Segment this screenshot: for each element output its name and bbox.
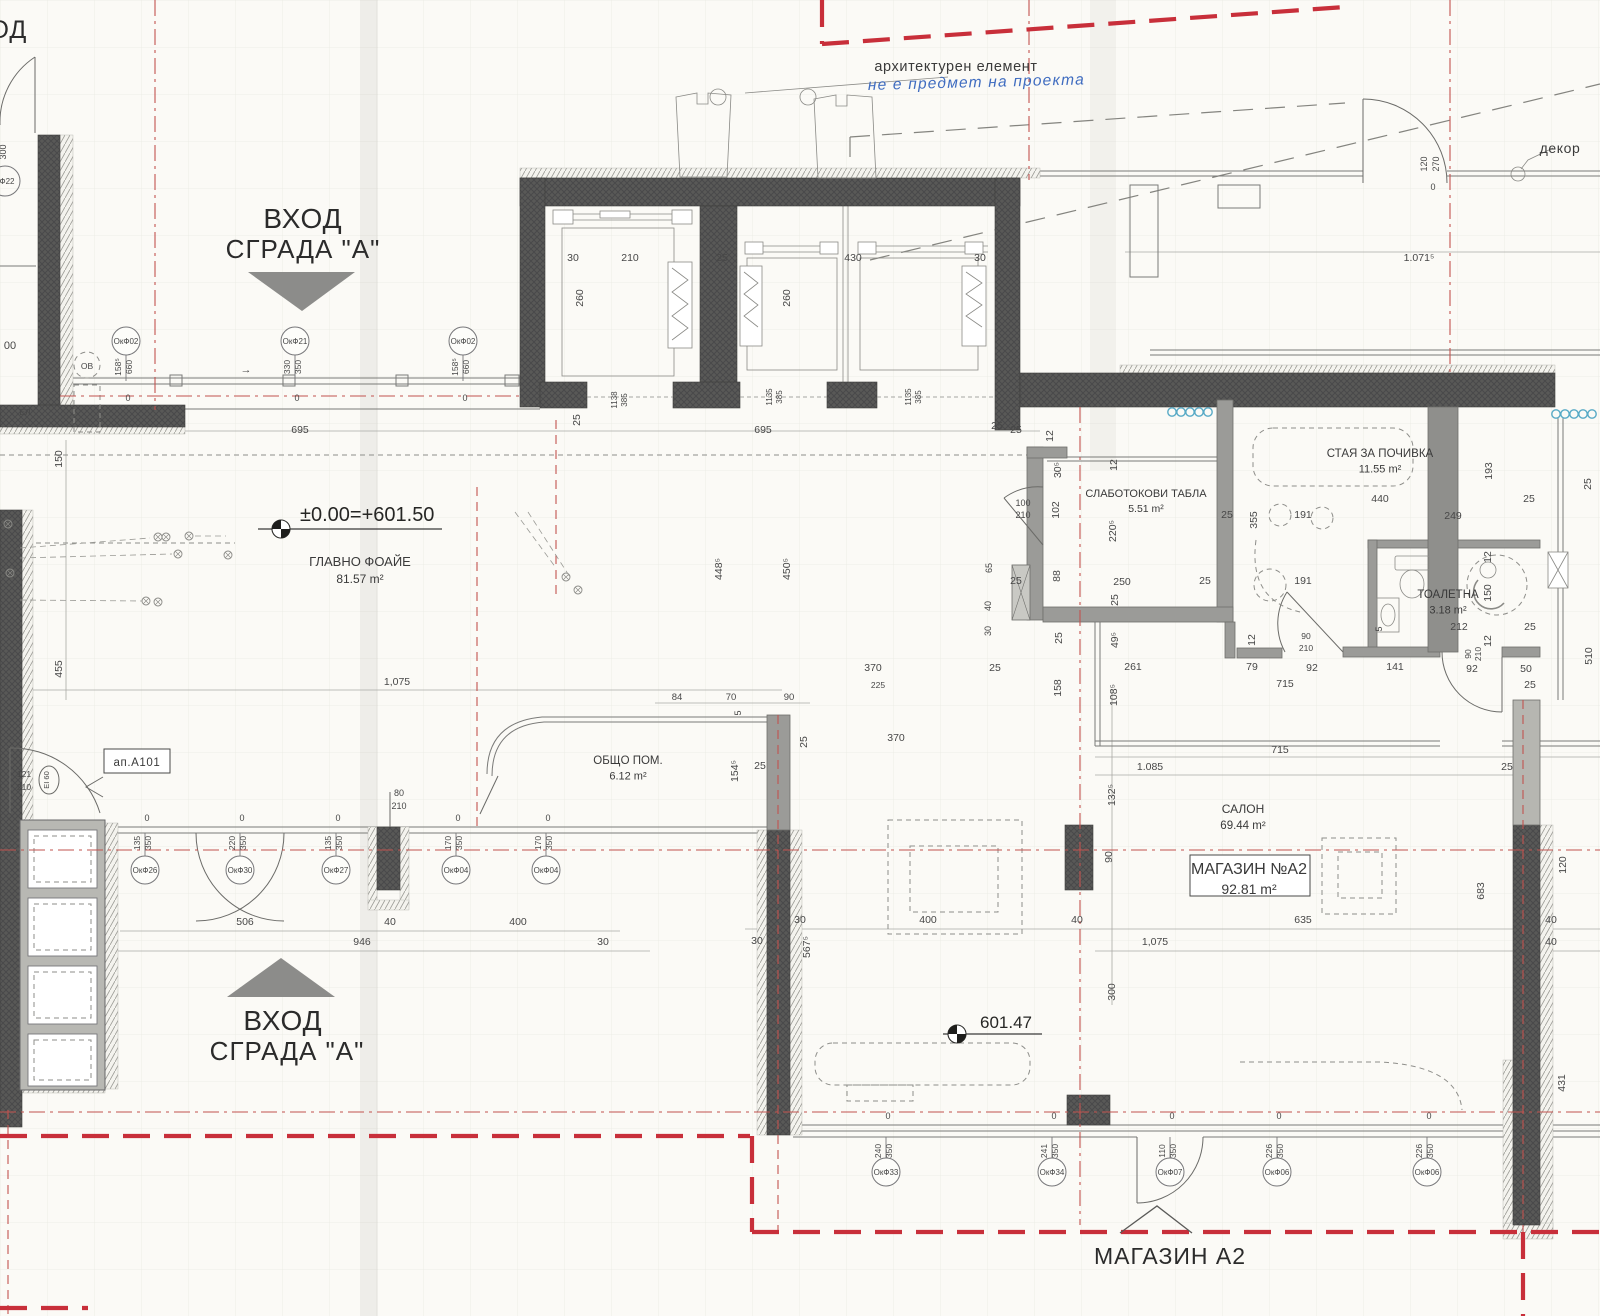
window-dim: 350: [544, 836, 554, 850]
window-tag-label: ОкФ06: [1415, 1168, 1440, 1177]
dimension-text: 506: [236, 916, 254, 928]
dimension-text: 25: [1524, 621, 1536, 633]
shop-bottom-label: МАГАЗИН А2: [1094, 1243, 1246, 1269]
entrance-top-line1: ВХОД: [263, 203, 342, 234]
dimension-text: 300: [1106, 983, 1118, 1001]
window-dim: 350: [1168, 1144, 1178, 1158]
window-tag-label: ОкФ27: [324, 866, 349, 875]
dimension-text: 210: [1473, 647, 1483, 661]
dimension-text: 448⁵: [713, 558, 725, 580]
dimension-text: 25: [1501, 761, 1513, 773]
window-dim: 158⁵: [113, 358, 123, 376]
dimension-text: 120: [1419, 156, 1429, 171]
window-tag-label: ОкФ30: [228, 866, 253, 875]
dimension-text: 92: [1466, 663, 1478, 675]
dimension-text: 261: [1124, 661, 1142, 673]
dimension-text: 191: [1294, 509, 1312, 521]
dimension-text: 260: [781, 289, 793, 307]
dimension-text: 80: [394, 788, 404, 798]
window-dim: 350: [454, 836, 464, 850]
dimension-text: 695: [291, 424, 309, 436]
dimension-text: 00: [4, 340, 16, 352]
dimension-text: 120: [1557, 856, 1569, 874]
elevation-text: ±0.00=+601.50: [300, 504, 434, 526]
dimension-text: 30: [794, 914, 806, 926]
entrance-top-line2: СГРАДА "А": [226, 234, 381, 264]
dimension-text: 25: [1199, 575, 1211, 587]
window-tag-label: ОкФ21: [283, 337, 308, 346]
window-dim: 350: [884, 1144, 894, 1158]
dimension-text: 65: [984, 563, 994, 573]
window-zero-mark: 0: [545, 813, 550, 823]
dimension-text: 12: [1482, 635, 1494, 647]
dimension-text: 49⁵: [1109, 632, 1121, 648]
window-dim: 330: [282, 360, 292, 374]
dimension-text: 225: [871, 680, 885, 690]
dimension-text: 355: [1248, 511, 1260, 529]
dimension-text: 12: [1246, 634, 1258, 646]
dimension-text: 150: [1482, 584, 1494, 602]
dimension-text: 30: [983, 626, 993, 636]
dimension-text: 108⁵: [1108, 684, 1120, 706]
window-tag-label: ОкФ04: [444, 866, 469, 875]
dimension-text: 455: [53, 660, 65, 678]
dimension-text: 385: [775, 390, 784, 404]
window-dim: 158⁵: [450, 358, 460, 376]
window-zero-mark: 0: [335, 813, 340, 823]
window-zero-mark: 0: [455, 813, 460, 823]
window-zero-mark: 0: [144, 813, 149, 823]
dimension-text: 370: [864, 662, 882, 674]
dimension-text: 635: [1294, 914, 1312, 926]
dimension-text: 40: [384, 916, 396, 928]
dimension-text: 440: [1371, 493, 1389, 505]
dimension-text: 25: [1523, 493, 1535, 505]
window-tag-label: ОкФ34: [1040, 1168, 1065, 1177]
dimension-text: 25: [798, 736, 810, 748]
dimension-text: 510: [1583, 647, 1595, 665]
dimension-text: 270: [1431, 156, 1441, 171]
dimension-text: 210: [391, 801, 406, 811]
dimension-text: 1,075: [1142, 936, 1168, 948]
window-tag-label: ОкФ02: [451, 337, 476, 346]
dimension-text: 132⁵: [1106, 784, 1118, 806]
dimension-text: 25: [1582, 478, 1594, 490]
dimension-text: 50: [1520, 663, 1532, 675]
dimension-text: 102: [1050, 501, 1062, 519]
dimension-text: 1.071⁵: [1404, 252, 1435, 264]
dimension-text: 191: [1294, 575, 1312, 587]
dimension-text: 300: [0, 144, 8, 159]
dimension-text: 30⁵: [1052, 462, 1064, 478]
window-dim: 350: [1425, 1144, 1435, 1158]
window-zero-mark: 0: [125, 393, 130, 403]
window-dim: 350: [143, 836, 153, 850]
room-area: 5.51 m²: [1128, 503, 1164, 515]
window-dim: 241: [1039, 1144, 1049, 1158]
apartment-label: ап.А101: [114, 757, 161, 769]
dimension-text: 210: [1015, 510, 1030, 520]
entrance-bottom-line1: ВХОД: [243, 1005, 322, 1036]
window-zero-mark: 0: [1169, 1111, 1174, 1121]
dimension-text: 1138: [610, 391, 619, 409]
room-name: ГЛАВНО ФОАЙЕ: [309, 554, 411, 569]
dimension-text: 715: [1271, 744, 1289, 756]
dimension-text: 400: [919, 914, 937, 926]
dimension-text: 158: [1052, 679, 1064, 697]
dimension-text: 567⁵: [801, 936, 813, 958]
dimension-text: 5: [1374, 626, 1384, 631]
window-dim: 226: [1264, 1144, 1274, 1158]
window-dim: 220: [227, 836, 237, 850]
dimension-text: 431: [1556, 1074, 1568, 1092]
window-dim: 240: [873, 1144, 883, 1158]
window-tag-label: ОкФ07: [1158, 1168, 1183, 1177]
dimension-text: 695: [754, 424, 772, 436]
dimension-text: 30: [597, 936, 609, 948]
dimension-text: 385: [620, 393, 629, 407]
dimension-text: 385: [914, 390, 923, 404]
room-area: 81.57 m²: [336, 572, 383, 586]
window-dim: 350: [238, 836, 248, 850]
hod-partial-label: ХОД: [0, 16, 27, 44]
dimension-text: 90: [1463, 649, 1473, 659]
dimension-text: 193: [1483, 462, 1495, 480]
window-dim: 170: [443, 836, 453, 850]
dimension-text: 88: [1051, 570, 1063, 582]
window-dim: 350: [1275, 1144, 1285, 1158]
dimension-text: 1,075: [384, 676, 410, 688]
dimension-text: 84: [672, 692, 683, 703]
window-dim: 350: [293, 360, 303, 374]
window-zero-mark: 0: [885, 1111, 890, 1121]
room-name: САЛОН: [1222, 802, 1265, 816]
dimension-text: 40: [983, 601, 993, 611]
decor-label: декор: [1540, 140, 1581, 156]
window-zero-mark: 0: [1276, 1111, 1281, 1121]
dimension-text: 25: [716, 252, 728, 264]
room-name: ТОАЛЕТНА: [1417, 589, 1479, 601]
entrance-bottom-line2: СГРАДА "А": [210, 1036, 365, 1066]
dimension-text: 210: [621, 252, 639, 264]
el-label: ЕЛ: [19, 407, 30, 417]
window-dim: 135: [132, 836, 142, 850]
window-tag-label: ОкФ06: [1265, 1168, 1290, 1177]
dimension-text: 0: [1430, 182, 1435, 192]
mailbox-unit: [20, 820, 105, 1090]
dimension-text: 92: [1306, 662, 1318, 674]
dimension-text: 12: [1482, 551, 1494, 563]
dimension-text: 683: [1475, 882, 1487, 900]
room-name: ОБЩО ПОМ.: [593, 755, 662, 767]
window-zero-mark: 0: [294, 393, 299, 403]
dimension-text: 430: [844, 252, 862, 264]
room-area: 11.55 m²: [1359, 464, 1402, 476]
dimension-text: 40: [1071, 914, 1083, 926]
dimension-text: 210: [1299, 643, 1313, 653]
room-area: 6.12 m²: [609, 771, 647, 783]
dimension-text: 1.085: [1137, 761, 1163, 773]
dimension-text: 12: [1044, 430, 1056, 442]
room-name: МАГАЗИН №А2: [1191, 861, 1307, 878]
window-dim: 135: [323, 836, 333, 850]
window-tag-label: ОкФ02: [114, 337, 139, 346]
dimension-text: 25: [989, 662, 1001, 674]
dimension-text: 90: [1103, 851, 1115, 863]
room-name: СЛАБОТОКОВИ ТАБЛА: [1085, 488, 1207, 500]
dimension-text: 40: [1545, 936, 1557, 948]
dimension-text: 370: [887, 732, 905, 744]
dimension-text: 25: [1010, 424, 1022, 436]
dimension-text: 25: [1010, 575, 1022, 587]
dimension-text: 250: [1113, 576, 1131, 588]
dimension-text: 25: [991, 420, 1003, 432]
room-area: 69.44 m²: [1220, 820, 1266, 832]
dimension-text: 25: [1524, 679, 1536, 691]
room-name: СТАЯ ЗА ПОЧИВКА: [1327, 448, 1434, 460]
dimension-text: 70: [726, 692, 737, 703]
dimension-text: 12: [1108, 459, 1120, 471]
dimension-text: 220⁵: [1107, 520, 1119, 542]
window-dim: 660: [124, 360, 134, 374]
dimension-text: 40: [1545, 914, 1557, 926]
dimension-text: 30: [751, 935, 763, 947]
dimension-text: 260: [574, 289, 586, 307]
dimension-text: 30: [974, 252, 986, 264]
dimension-text: 25: [754, 760, 766, 772]
dimension-text: 100: [1015, 498, 1030, 508]
window-tag-label: ОкФ04: [534, 866, 559, 875]
dimension-text: 25: [571, 414, 583, 426]
window-zero-mark: 0: [239, 813, 244, 823]
f22-label: Ф22: [0, 177, 15, 186]
dimension-text: 90: [1301, 631, 1311, 641]
floor-plan-drawing: ВХОД СГРАДА "А" ВХОД СГРАДА "А" МАГАЗИН …: [0, 0, 1600, 1316]
dimension-text: 249: [1444, 510, 1462, 522]
floor-plan-page: ВХОД СГРАДА "А" ВХОД СГРАДА "А" МАГАЗИН …: [0, 0, 1600, 1316]
window-dim: 110: [1157, 1144, 1167, 1158]
dimension-text: 25: [1109, 594, 1121, 606]
dimension-text: →: [241, 364, 252, 376]
dimension-text: 400: [509, 916, 527, 928]
dimension-text: 25: [1053, 632, 1065, 644]
dimension-text: 154⁵: [729, 760, 741, 782]
dimension-text: 1135: [904, 388, 913, 406]
window-zero-mark: 0: [1426, 1111, 1431, 1121]
window-zero-mark: 0: [1051, 1111, 1056, 1121]
dimension-text: 210: [17, 782, 31, 792]
window-zero-mark: 0: [462, 393, 467, 403]
window-dim: 660: [461, 360, 471, 374]
window-tag-label: ОкФ26: [133, 866, 158, 875]
dimension-text: 150: [53, 450, 65, 468]
window-tag-label: ОкФ33: [874, 1168, 899, 1177]
window-dim: 226: [1414, 1144, 1424, 1158]
dimension-text: 5: [733, 710, 743, 715]
window-dim: 350: [334, 836, 344, 850]
dimension-text: 30: [567, 252, 579, 264]
dimension-text: 79: [1246, 661, 1258, 673]
window-dim: 170: [533, 836, 543, 850]
dimension-text: 946: [353, 936, 371, 948]
dimension-text: 450⁵: [781, 558, 793, 580]
room-area: 3.18 m²: [1429, 605, 1467, 617]
window-dim: 350: [1050, 1144, 1060, 1158]
elevation-text: 601.47: [980, 1013, 1032, 1032]
ov-label: ОВ: [81, 361, 94, 371]
dimension-text: 141: [1386, 661, 1404, 673]
dimension-text: 121: [17, 769, 31, 779]
dimension-text: 1135: [765, 388, 774, 406]
dimension-text: 715: [1276, 678, 1294, 690]
dimension-text: 25: [1221, 509, 1233, 521]
room-area: 92.81 m²: [1221, 881, 1277, 897]
dimension-text: 90: [784, 692, 795, 703]
dimension-text: 212: [1450, 621, 1468, 633]
ei60-label: EI 60: [42, 771, 51, 789]
